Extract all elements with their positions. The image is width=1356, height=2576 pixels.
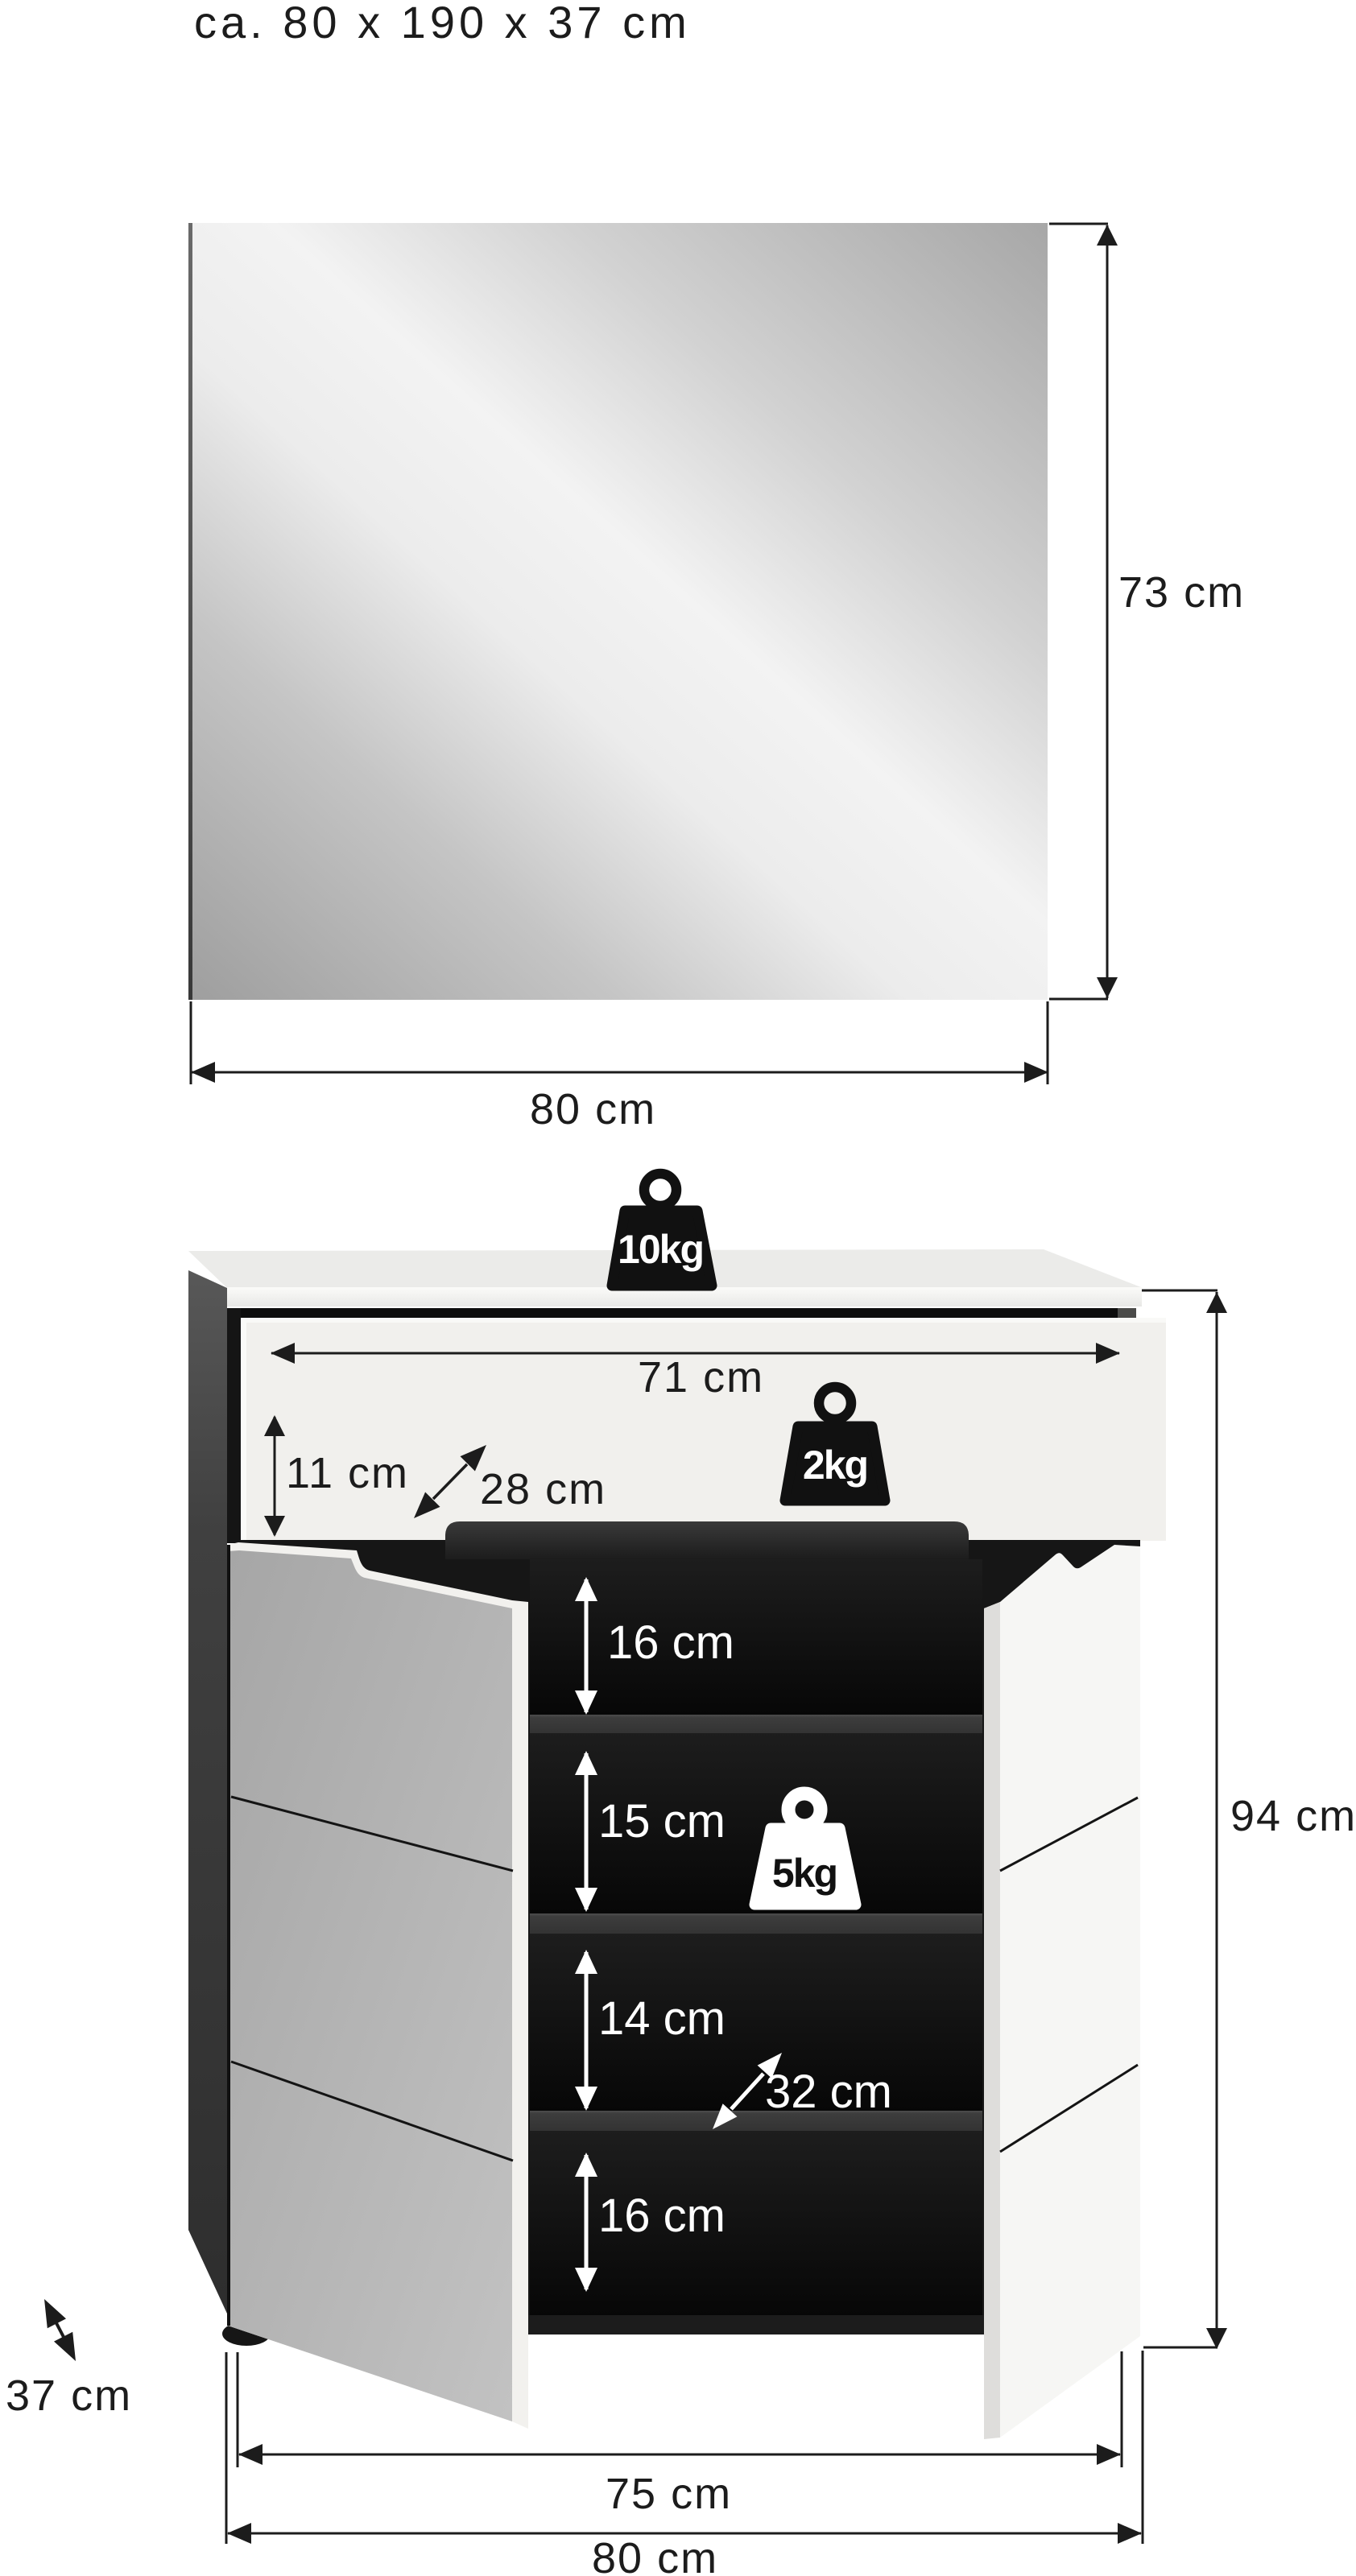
svg-text:5kg: 5kg [772, 1851, 837, 1896]
svg-text:73 cm: 73 cm [1118, 568, 1245, 617]
svg-text:80 cm: 80 cm [530, 1085, 656, 1133]
svg-text:80 cm: 80 cm [592, 2534, 718, 2576]
svg-text:28 cm: 28 cm [480, 1465, 606, 1513]
svg-text:94 cm: 94 cm [1230, 1792, 1356, 1840]
svg-text:32 cm: 32 cm [765, 2066, 892, 2118]
svg-text:11 cm: 11 cm [286, 1449, 409, 1497]
svg-text:71 cm: 71 cm [638, 1353, 764, 1402]
svg-text:ca. 80 x 190 x 37 cm: ca. 80 x 190 x 37 cm [194, 0, 691, 47]
svg-text:14 cm: 14 cm [598, 1992, 726, 2045]
svg-text:15 cm: 15 cm [598, 1795, 726, 1847]
svg-text:75 cm: 75 cm [606, 2470, 732, 2518]
svg-text:2kg: 2kg [803, 1443, 867, 1488]
svg-text:16 cm: 16 cm [607, 1616, 734, 1669]
svg-text:37 cm: 37 cm [6, 2372, 132, 2420]
svg-text:16 cm: 16 cm [598, 2190, 726, 2242]
svg-text:10kg: 10kg [618, 1227, 703, 1272]
